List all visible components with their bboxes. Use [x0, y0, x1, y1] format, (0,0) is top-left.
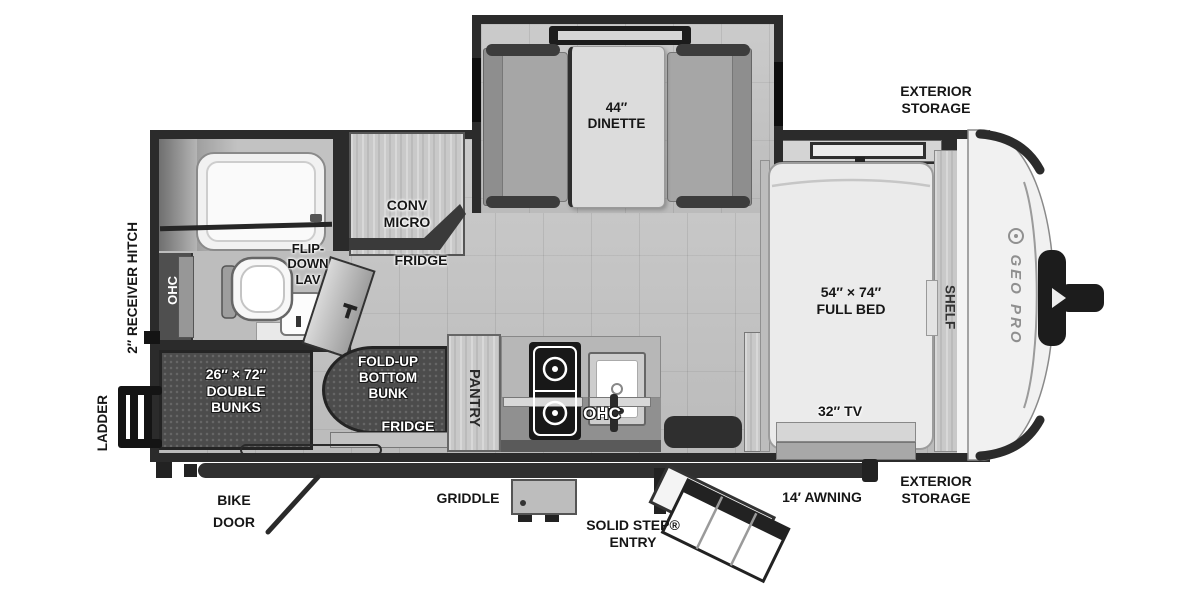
label-exterior-storage-top: EXTERIOR STORAGE	[866, 83, 1006, 116]
label-line: LAV	[272, 272, 344, 287]
label-flip-down-lav: FLIP- DOWN LAV	[272, 241, 344, 287]
label-receiver-hitch: 2″ RECEIVER HITCH	[121, 208, 143, 368]
label-line: ENTRY	[563, 534, 703, 551]
hitch-coupler-icon	[1060, 284, 1104, 312]
label-line: DOWN	[272, 256, 344, 271]
label-line: SOLID STEP®	[563, 517, 703, 534]
label-line: 2″ RECEIVER HITCH	[125, 222, 140, 354]
brand-logo-dot	[1014, 234, 1018, 238]
label-griddle: GRIDDLE	[398, 490, 538, 507]
label-solid-step-entry: SOLID STEP® ENTRY	[563, 517, 703, 550]
label-bike-door: BIKE DOOR	[174, 490, 294, 533]
label-line: DOOR	[174, 512, 294, 534]
cooktop-burner-icon	[552, 366, 558, 372]
label-line: EXTERIOR	[866, 83, 1006, 100]
cabinet-front-angled	[349, 204, 466, 250]
bed-seam	[772, 180, 930, 186]
floorplan-diagram: 44″ DINETTE OHC CONV MICRO FRIDGE 26″ × …	[0, 0, 1200, 600]
label-line: FLIP-	[272, 241, 344, 256]
brand-text: GEO PRO	[1007, 254, 1024, 345]
label-line: LADDER	[95, 395, 110, 451]
label-ladder: LADDER	[91, 382, 113, 464]
label-line: BIKE	[174, 490, 294, 512]
label-line: STORAGE	[866, 100, 1006, 117]
cooktop-burner-icon	[552, 410, 558, 416]
label-line: EXTERIOR	[866, 473, 1006, 490]
label-awning: 14′ AWNING	[752, 489, 892, 506]
